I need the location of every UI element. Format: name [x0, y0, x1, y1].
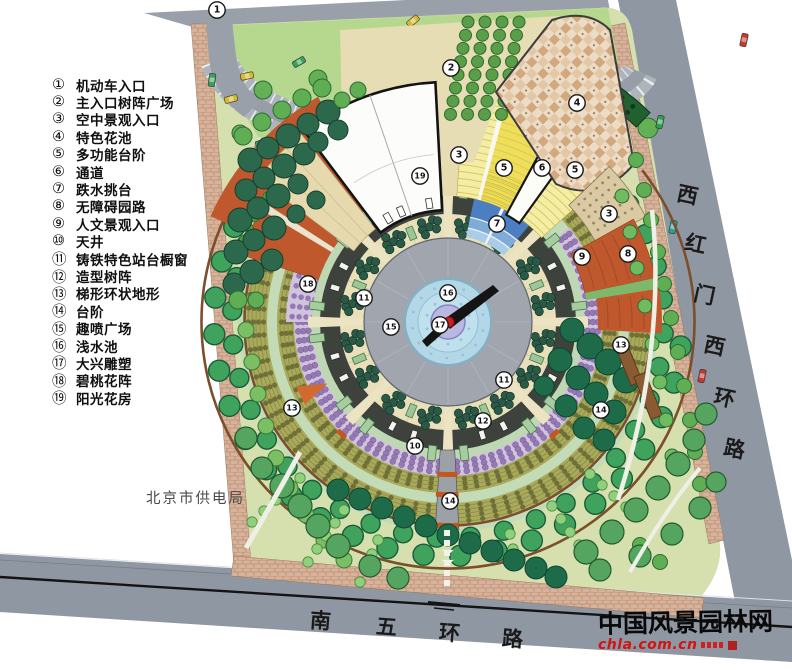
plan-marker: 9 — [574, 249, 590, 265]
plan-marker-number: 19 — [414, 172, 426, 181]
legend-item-number: ⑤ — [52, 146, 76, 162]
plan-marker-number: 11 — [358, 294, 370, 303]
power-bureau-label: 北京市供电局 — [146, 487, 245, 508]
plan-marker-number: 13 — [615, 341, 626, 350]
plan-marker-number: 4 — [574, 98, 581, 109]
plan-marker: 15 — [383, 319, 399, 335]
plan-marker: 5 — [567, 162, 583, 178]
plan-marker-number: 1 — [214, 5, 221, 16]
watermark-small-glyphs — [701, 642, 723, 648]
plan-marker-number: 5 — [501, 163, 508, 174]
legend-item: ⑤多功能台阶 — [52, 146, 188, 163]
plan-marker-number: 9 — [579, 252, 586, 263]
plan-marker: 11 — [356, 290, 372, 306]
legend-item: ⑦跌水挑台 — [52, 180, 188, 197]
watermark-seal-icon — [728, 641, 737, 650]
plan-marker: 14 — [593, 402, 609, 418]
plan-marker-number: 12 — [477, 417, 488, 426]
watermark-url: chla.com.cn — [598, 638, 697, 652]
plan-marker: 1 — [209, 2, 225, 18]
plan-marker-number: 8 — [625, 249, 632, 260]
legend-item-number: ⑨ — [52, 216, 76, 232]
car-icon — [740, 33, 749, 47]
plan-marker: 13 — [284, 400, 300, 416]
plan-marker: 16 — [440, 285, 456, 301]
plan-marker: 4 — [569, 95, 585, 111]
legend: ①机动车入口②主入口树阵广场③空中景观入口④特色花池⑤多功能台阶⑥通道⑦跌水挑台… — [52, 76, 188, 406]
plan-marker: 3 — [451, 147, 467, 163]
plan-marker: 19 — [412, 168, 428, 184]
legend-item: ④特色花池 — [52, 128, 188, 145]
legend-item-number: ① — [52, 77, 76, 93]
legend-item: ①机动车入口 — [52, 76, 188, 93]
plan-marker-number: 7 — [494, 219, 501, 230]
south-road-label-char: 五 — [375, 614, 398, 640]
south-road-label-char: 南 — [309, 608, 332, 634]
plan-marker-number: 17 — [434, 321, 445, 330]
plan-marker-number: 5 — [572, 165, 579, 176]
plan-marker: 10 — [407, 438, 423, 454]
plan-marker-number: 18 — [302, 280, 314, 289]
legend-item-number: ⑧ — [52, 198, 76, 214]
plan-marker-number: 15 — [385, 323, 397, 332]
plan-marker-number: 3 — [606, 209, 613, 220]
plan-marker: 18 — [300, 276, 316, 292]
legend-item-number: ④ — [52, 129, 76, 145]
plan-marker: 14 — [442, 493, 458, 509]
plan-marker: 12 — [475, 413, 491, 429]
plan-marker-number: 3 — [456, 150, 463, 161]
car-icon — [208, 73, 216, 87]
plan-marker: 17 — [432, 317, 448, 333]
legend-item-number: ⑥ — [52, 164, 76, 180]
plan-marker: 13 — [613, 337, 629, 353]
legend-item-number: ⑩ — [52, 233, 76, 249]
plan-marker-number: 16 — [442, 289, 454, 298]
plan-marker: 2 — [443, 60, 459, 76]
plan-marker: 8 — [620, 246, 636, 262]
legend-item-number: ② — [52, 94, 76, 110]
legend-item: ⑥通道 — [52, 163, 188, 180]
watermark: 中国风景园林网 chla.com.cn — [598, 610, 792, 652]
legend-item: ⑨人文景观入口 — [52, 215, 188, 232]
legend-item-number: ⑦ — [52, 181, 76, 197]
legend-item: ③空中景观入口 — [52, 111, 188, 128]
plan-marker: 7 — [489, 216, 505, 232]
plan-marker: 6 — [534, 160, 550, 176]
south-road-label-char: 路 — [501, 626, 525, 652]
legend-item: ⑲阳光花房 — [52, 389, 188, 406]
plan-marker-number: 14 — [595, 406, 607, 415]
plan-marker-number: 14 — [444, 497, 456, 506]
plan-marker: 3 — [601, 206, 617, 222]
watermark-title: 中国风景园林网 — [598, 608, 792, 636]
legend-item: ⑧无障碍园路 — [52, 198, 188, 215]
plan-marker-number: 6 — [539, 163, 546, 174]
plan-marker-number: 13 — [286, 404, 297, 413]
legend-item-number: ⑲ — [52, 387, 76, 408]
plan-marker: 11 — [496, 372, 512, 388]
south-road-label-char: 环 — [438, 620, 461, 646]
plan-marker-number: 11 — [498, 376, 510, 385]
site-plan-page: 1234565398719181116151711131412101314 南五… — [0, 0, 792, 670]
plan-marker-number: 2 — [448, 63, 455, 74]
plan-marker: 5 — [496, 160, 512, 176]
legend-item: ②主入口树阵广场 — [52, 93, 188, 110]
plan-marker-number: 10 — [409, 442, 421, 451]
legend-item-label: 阳光花房 — [76, 388, 132, 408]
legend-item-number: ③ — [52, 111, 76, 127]
